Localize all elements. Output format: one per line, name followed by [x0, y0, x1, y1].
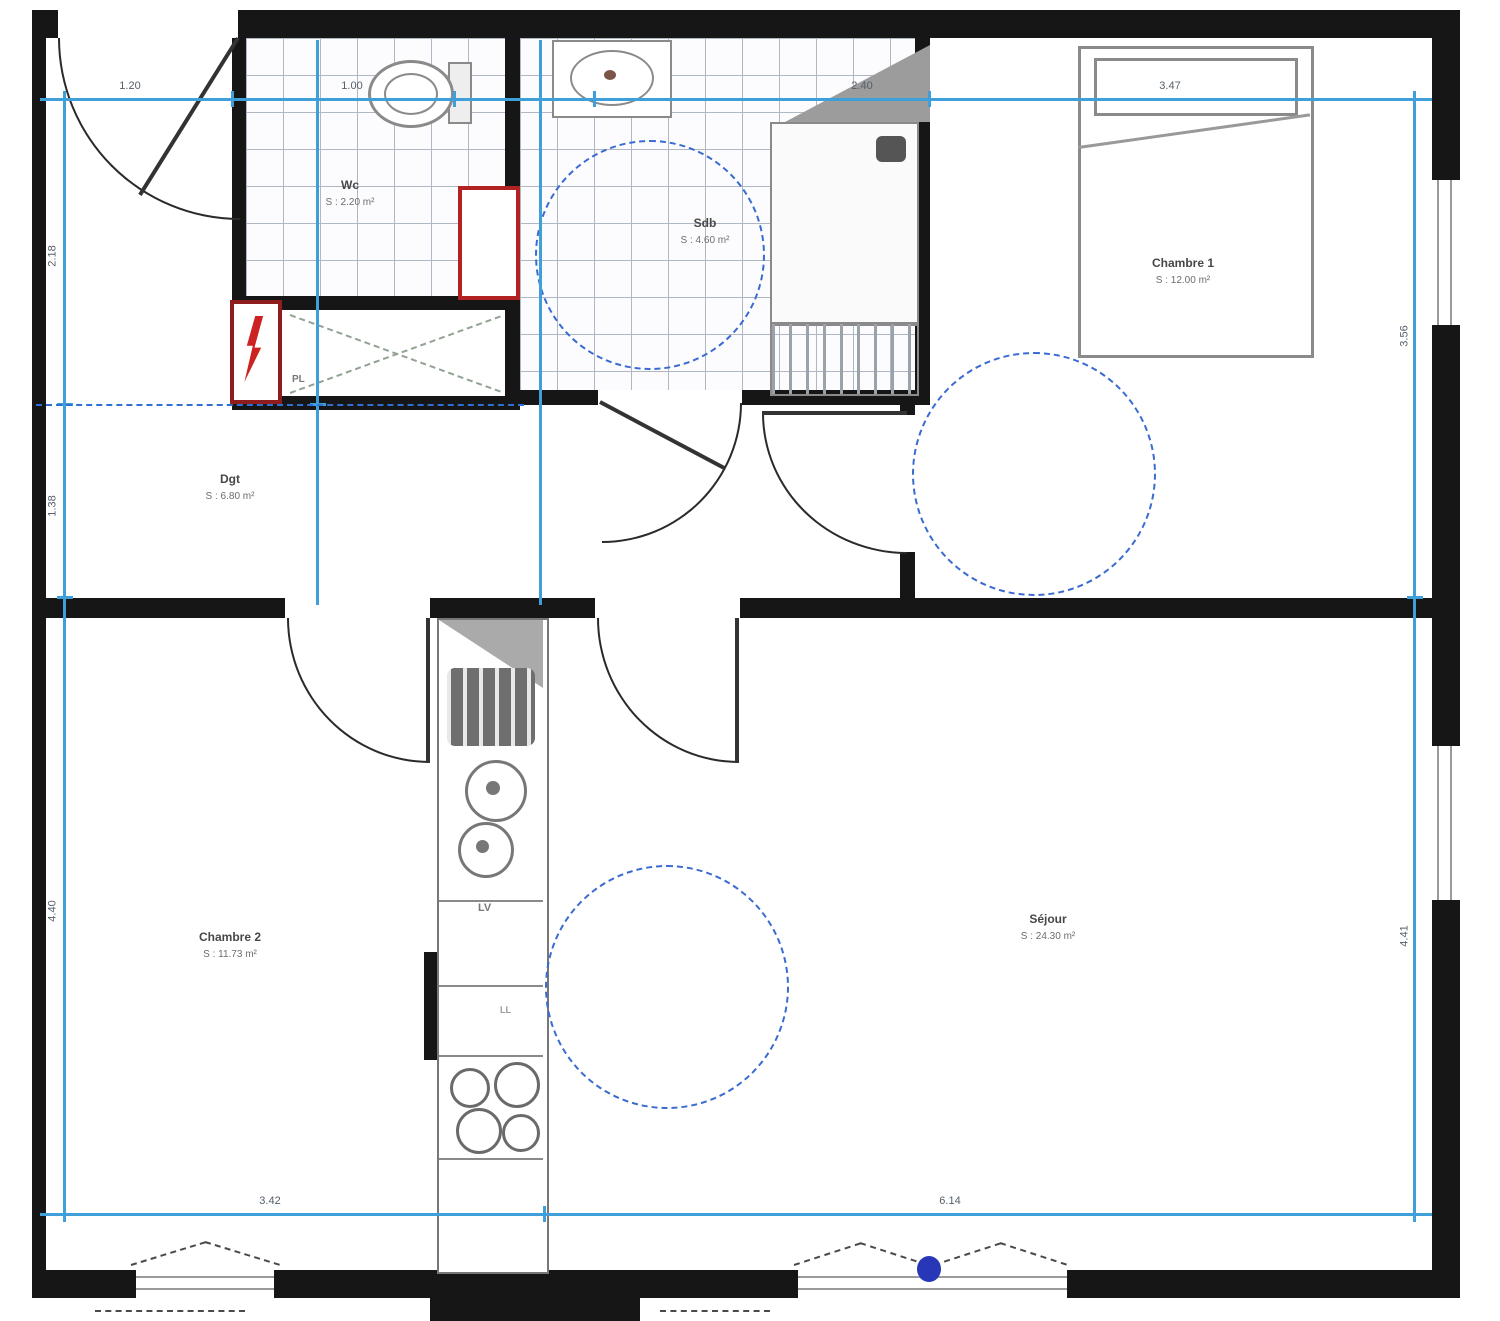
- room-area-dgt: S : 6.80 m²: [206, 491, 255, 502]
- window-bedroom2-frame-line: [128, 1276, 282, 1278]
- room-name-dgt: Dgt: [206, 472, 255, 486]
- dim-label-left-3: 4.40: [47, 900, 59, 921]
- window-bedroom2-opening-dash-left: [131, 1241, 206, 1266]
- room-name-sejour: Séjour: [1021, 912, 1075, 926]
- dim-label-top-1: 1.20: [119, 80, 140, 92]
- bedroom2-door-leaf: [426, 618, 430, 763]
- hob-burner-3: [456, 1108, 502, 1154]
- turning-circle-bathroom: [535, 140, 765, 370]
- window-livingroom-right-cap-bottom: [1432, 900, 1460, 908]
- dim-tick: [543, 1206, 546, 1222]
- window-bedroom1-frame-line: [1437, 172, 1439, 333]
- bedroom2-door-arc: [287, 618, 430, 763]
- french-window-frame-line2: [790, 1288, 1075, 1290]
- closet-label: PL: [292, 374, 305, 385]
- french-window-marker-icon: [917, 1256, 941, 1282]
- dimension-line-inner-1: [316, 40, 319, 605]
- mid-wall-left: [32, 598, 285, 618]
- kitchen-divider-2: [439, 985, 543, 987]
- dimension-line-bottom: [40, 1213, 1432, 1216]
- room-area-chambre2: S : 11.73 m²: [199, 949, 261, 960]
- dim-tick: [928, 91, 931, 107]
- room-area-sejour: S : 24.30 m²: [1021, 931, 1075, 942]
- kitchen-appliance-vent: [447, 668, 535, 746]
- right-wall-upper: [1432, 10, 1460, 172]
- technical-duct: [458, 186, 520, 300]
- room-name-chambre1: Chambre 1: [1152, 256, 1214, 270]
- room-name-wc: Wc: [326, 178, 375, 192]
- room-label-wc: Wc S : 2.20 m²: [326, 178, 375, 208]
- room-label-chambre1: Chambre 1 S : 12.00 m²: [1152, 256, 1214, 286]
- dim-tick: [231, 91, 234, 107]
- bottom-wall-right: [1075, 1270, 1460, 1298]
- dimension-line-right: [1413, 98, 1416, 1216]
- window-bedroom2-cap-right: [274, 1270, 282, 1298]
- window-bedroom2-cap-left: [128, 1270, 136, 1298]
- dim-label-bottom-1: 3.42: [259, 1195, 280, 1207]
- livingroom-door-leaf: [735, 618, 739, 763]
- turning-circle-bedroom1: [912, 352, 1156, 596]
- shower-head-icon: [876, 136, 906, 162]
- dim-label-top-4: 3.47: [1159, 80, 1180, 92]
- dim-label-bottom-2: 6.14: [939, 1195, 960, 1207]
- sink-drain-1-icon: [486, 781, 500, 795]
- bedroom1-door-arc: [762, 413, 907, 554]
- french-window-dash-2: [860, 1242, 927, 1266]
- hob-burner-4: [502, 1114, 540, 1152]
- bottom-wall-center: [282, 1270, 790, 1298]
- floor-plan: PL LV LL 1.20 1.00 2.40 3.47 3.42 6.14: [0, 0, 1500, 1321]
- bedroom1-door-leaf: [762, 411, 907, 415]
- kitchen-divider-3: [439, 1055, 543, 1057]
- dim-label-left-1: 2.18: [47, 245, 59, 266]
- dim-tick: [453, 91, 456, 107]
- left-wall: [32, 10, 46, 1298]
- dim-tick: [1407, 596, 1423, 599]
- window-bedroom1-cap-bottom: [1432, 325, 1460, 333]
- french-window-dash-4: [1000, 1242, 1067, 1266]
- dishwasher-label: LV: [478, 902, 491, 914]
- sink-drain-2-icon: [476, 840, 489, 853]
- window-bedroom2-opening-dash-right: [205, 1241, 280, 1266]
- bottom-wall-left: [32, 1270, 128, 1298]
- exterior-dashed-edge-center: [660, 1310, 770, 1312]
- top-wall: [238, 10, 1460, 38]
- window-livingroom-right-frame-line: [1437, 738, 1439, 908]
- room-area-chambre1: S : 12.00 m²: [1152, 275, 1214, 286]
- bed-pillow: [1094, 58, 1298, 116]
- washbasin-drain-icon: [604, 70, 616, 80]
- window-livingroom-right-frame-line2: [1450, 738, 1452, 908]
- dimension-line-left: [63, 98, 66, 1216]
- dim-label-top-2: 1.00: [341, 80, 362, 92]
- window-bedroom2-frame-line2: [128, 1288, 282, 1290]
- dimension-line-inner-2: [539, 40, 542, 605]
- dim-label-left-2: 1.38: [47, 495, 59, 516]
- turning-circle-livingroom: [545, 865, 789, 1109]
- bottom-wall-stub-below: [430, 1298, 640, 1321]
- dim-label-right-1: 3.56: [1399, 325, 1411, 346]
- window-bedroom1-cap-top: [1432, 172, 1460, 180]
- french-window-cap-left: [790, 1270, 798, 1298]
- washing-machine-label: LL: [500, 1005, 511, 1015]
- dim-label-top-3: 2.40: [851, 80, 872, 92]
- bathroom-door-arc: [602, 403, 742, 543]
- dim-tick: [57, 596, 73, 599]
- right-wall-lower: [1432, 908, 1460, 1298]
- room-label-sdb: Sdb S : 4.60 m²: [681, 216, 730, 246]
- room-name-chambre2: Chambre 2: [199, 930, 261, 944]
- room-area-sdb: S : 4.60 m²: [681, 235, 730, 246]
- mid-wall-center: [430, 598, 595, 618]
- hob-burner-1: [450, 1068, 490, 1108]
- right-wall-middle: [1432, 333, 1460, 738]
- dim-tick: [593, 91, 596, 107]
- kitchen-divider-4: [439, 1158, 543, 1160]
- mid-wall-right: [740, 598, 1432, 618]
- window-livingroom-right-cap-top: [1432, 738, 1460, 746]
- shower-screen-grid: [770, 322, 919, 396]
- toilet-bowl-inner: [384, 73, 438, 115]
- room-area-wc: S : 2.20 m²: [326, 197, 375, 208]
- exterior-dashed-edge-left: [95, 1310, 245, 1312]
- entrance-door-arc: [58, 38, 240, 220]
- livingroom-door-arc: [597, 618, 739, 763]
- room-name-sdb: Sdb: [681, 216, 730, 230]
- dim-label-right-2: 4.41: [1399, 925, 1411, 946]
- hob-burner-2: [494, 1062, 540, 1108]
- room-label-chambre2: Chambre 2 S : 11.73 m²: [199, 930, 261, 960]
- window-bedroom1-frame-line2: [1450, 172, 1452, 333]
- room-label-dgt: Dgt S : 6.80 m²: [206, 472, 255, 502]
- french-window-dash-3: [934, 1242, 1001, 1266]
- kitchen-wall-stub: [424, 952, 438, 1060]
- bathroom-bottom-wall-left: [520, 390, 598, 405]
- french-window-dash-1: [794, 1242, 861, 1266]
- dimension-dashed-line: [36, 404, 524, 406]
- bedroom1-hall-wall-bottom: [900, 552, 915, 598]
- room-label-sejour: Séjour S : 24.30 m²: [1021, 912, 1075, 942]
- french-window-cap-right: [1067, 1270, 1075, 1298]
- dimension-line-top: [40, 98, 1432, 101]
